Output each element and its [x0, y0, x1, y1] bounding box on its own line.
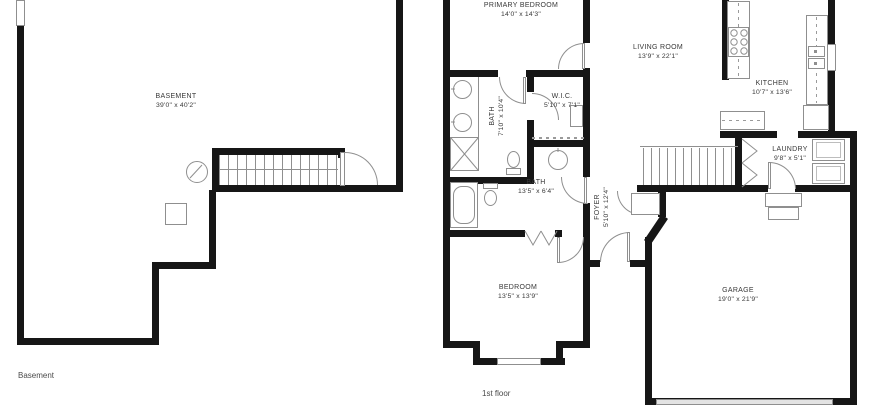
- floor-plan-canvas: BASEMENT 39'0" x 40'2" PRIMARY BEDROOM 1…: [0, 0, 870, 420]
- wall: [583, 0, 590, 43]
- door-swing-arc: [558, 237, 584, 263]
- wall: [212, 185, 403, 192]
- wall: [526, 70, 590, 77]
- wall: [828, 0, 835, 44]
- room-label-garage: GARAGE 19'0" x 21'9": [718, 287, 758, 303]
- sink-icon: [453, 113, 472, 132]
- garage-step: [765, 193, 802, 207]
- sink-drain: [814, 50, 817, 53]
- pedestal-sink-icon: [548, 150, 568, 170]
- floor-caption-first: 1st floor: [482, 389, 510, 398]
- sink-icon: [453, 80, 472, 99]
- wall: [212, 148, 345, 155]
- wall: [645, 237, 652, 405]
- room-name: BATH: [489, 96, 496, 136]
- front-door-swing-arc: [600, 232, 630, 262]
- room-name: LAUNDRY: [772, 146, 807, 153]
- shower-icon: [450, 137, 479, 171]
- wall: [152, 262, 159, 345]
- door-swing-arc: [769, 162, 796, 189]
- sink-drain: [814, 62, 817, 65]
- room-dims: 5'10" x 7'1": [544, 102, 580, 109]
- room-name: BATH: [518, 179, 554, 186]
- garage-door: [656, 399, 833, 405]
- wall: [795, 185, 857, 192]
- dryer-drum: [816, 166, 841, 181]
- wall: [443, 70, 498, 77]
- counter-center-line: [722, 120, 763, 121]
- toilet-bowl-icon: [507, 151, 520, 168]
- room-dims: 5'10" x 12'4": [603, 187, 610, 227]
- stairs-edge: [640, 146, 738, 147]
- under-stair-closet: [631, 193, 660, 215]
- basement-window: [16, 0, 25, 26]
- wall: [443, 230, 525, 237]
- wall: [17, 25, 24, 345]
- stair-rail: [219, 169, 338, 170]
- utility-box-icon: [165, 203, 187, 225]
- room-label-bedroom: BEDROOM 13'5" x 13'9": [498, 284, 538, 300]
- washer-drum: [816, 142, 841, 158]
- room-dims: 7'10" x 10'4": [498, 96, 505, 136]
- wall: [17, 338, 159, 345]
- room-name: FOYER: [594, 187, 601, 227]
- bedroom-bay-window: [497, 358, 541, 365]
- first-floor-stairs: [643, 148, 736, 185]
- wall: [443, 0, 450, 348]
- cooktop-icon: [728, 27, 749, 57]
- wall: [556, 341, 590, 348]
- room-dims: 19'0" x 21'9": [718, 296, 758, 303]
- wall-diagonal: [644, 214, 668, 244]
- room-name: LIVING ROOM: [633, 44, 683, 51]
- room-label-living-room: LIVING ROOM 13'9" x 22'1": [633, 44, 683, 60]
- refrigerator-icon: [803, 105, 829, 130]
- room-dims: 13'5" x 13'9": [498, 293, 538, 300]
- wall: [850, 131, 857, 405]
- room-name: BASEMENT: [156, 93, 197, 100]
- bathtub-basin: [453, 186, 475, 224]
- room-label-basement: BASEMENT 39'0" x 40'2": [156, 93, 197, 109]
- room-label-primary-bedroom: PRIMARY BEDROOM 14'0" x 14'3": [484, 2, 558, 18]
- toilet-bowl-icon: [484, 190, 497, 206]
- basement-stairs: [219, 155, 338, 185]
- vanity-counter-edge: [478, 77, 479, 137]
- room-dims: 39'0" x 40'2": [156, 102, 197, 109]
- wall: [737, 185, 768, 192]
- room-dims: 9'8" x 5'1": [772, 155, 807, 162]
- wall: [583, 68, 590, 177]
- door-swing-arc: [561, 177, 588, 204]
- wall: [527, 77, 534, 92]
- door-swing-arc: [558, 43, 584, 69]
- closet-rod: [532, 137, 585, 139]
- wall: [720, 131, 777, 138]
- room-name: BEDROOM: [498, 284, 538, 291]
- toilet-tank-icon: [483, 183, 498, 189]
- room-name: KITCHEN: [752, 80, 792, 87]
- room-label-hall-bath: BATH 13'5" x 6'4": [518, 179, 554, 195]
- wall: [828, 71, 835, 138]
- wall: [637, 185, 745, 192]
- room-label-foyer: FOYER 5'10" x 12'4": [594, 187, 610, 227]
- room-label-wic: W.I.C. 5'10" x 7'1": [544, 93, 580, 109]
- wall: [209, 190, 216, 269]
- room-dims: 14'0" x 14'3": [484, 11, 558, 18]
- wall: [152, 262, 216, 269]
- wall: [583, 203, 590, 348]
- room-label-primary-bath: BATH 7'10" x 10'4": [489, 96, 505, 136]
- kitchen-window: [827, 44, 836, 71]
- toilet-tank-icon: [506, 168, 521, 175]
- wall: [555, 230, 562, 237]
- room-name: GARAGE: [718, 287, 758, 294]
- room-dims: 13'5" x 6'4": [518, 188, 554, 195]
- room-dims: 13'9" x 22'1": [633, 53, 683, 60]
- wall: [527, 120, 534, 177]
- wall: [534, 140, 590, 147]
- room-label-laundry: LAUNDRY 9'8" x 5'1": [772, 146, 807, 162]
- floor-caption-basement: Basement: [18, 371, 54, 380]
- room-dims: 10'7" x 13'6": [752, 89, 792, 96]
- sump-pump-icon: [186, 161, 208, 183]
- wall: [473, 358, 499, 365]
- wall: [396, 0, 403, 192]
- wall: [798, 131, 829, 138]
- room-name: PRIMARY BEDROOM: [484, 2, 558, 9]
- room-name: W.I.C.: [544, 93, 580, 100]
- door-swing-arc: [345, 152, 378, 185]
- room-label-kitchen: KITCHEN 10'7" x 13'6": [752, 80, 792, 96]
- wall: [735, 133, 742, 192]
- wall: [583, 260, 600, 267]
- garage-step: [768, 207, 799, 220]
